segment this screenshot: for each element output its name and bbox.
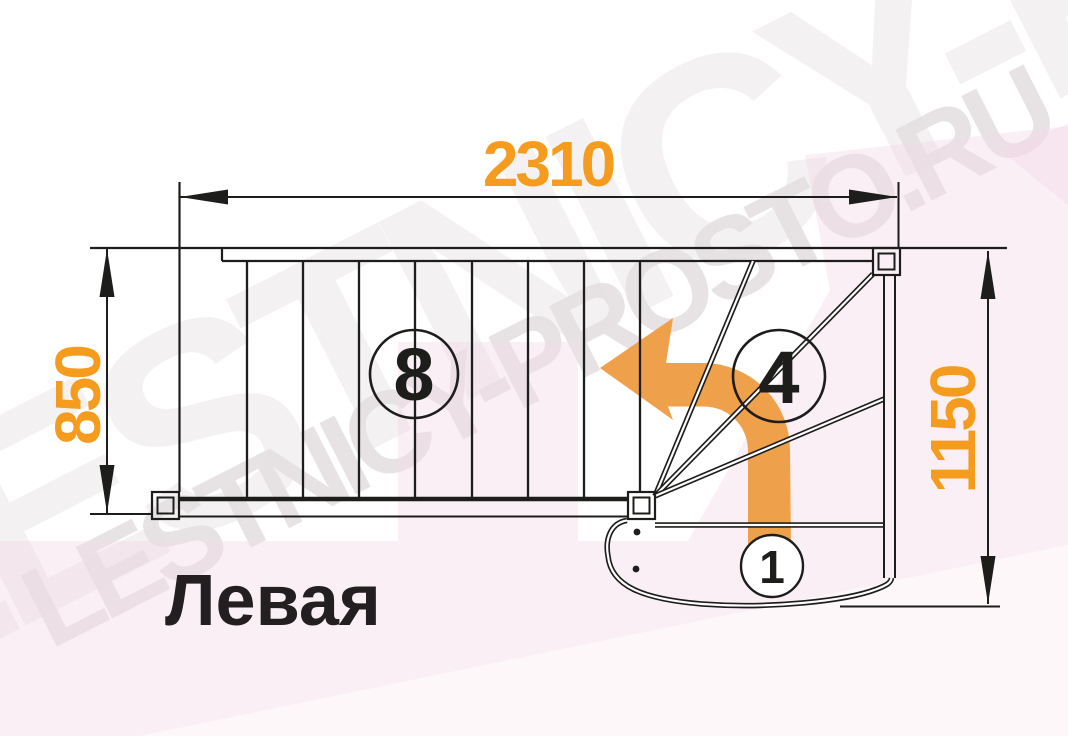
dowel-dot (633, 566, 640, 573)
drawing-svg: LESTNICY-PROSTO.RU LESTNICY-PROSTO.RU (0, 0, 1068, 736)
first-step-number: 1 (759, 541, 785, 593)
dim-arrow-left (180, 190, 228, 205)
winder-number: 4 (758, 336, 799, 419)
winder-post-outer (628, 492, 655, 519)
dim-label-right: 1150 (917, 366, 989, 493)
drawing-title: Левая (165, 561, 381, 641)
straight-flight-number: 8 (393, 333, 434, 416)
winder-post-inner (634, 498, 650, 514)
dim-arrow-up (100, 249, 115, 297)
staircase-plan-drawing: LESTNICY-PROSTO.RU LESTNICY-PROSTO.RU (0, 0, 1068, 736)
dowel-dot (634, 529, 641, 536)
dim-label-top: 2310 (483, 128, 614, 200)
dim-label-left: 850 (42, 347, 114, 445)
